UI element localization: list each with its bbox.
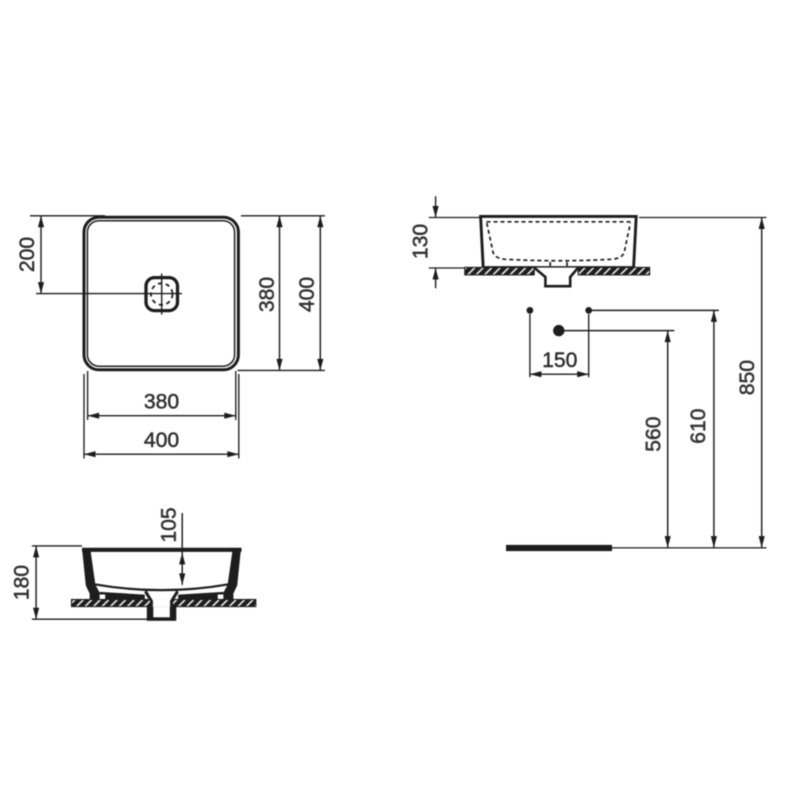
svg-text:380: 380 [256,277,279,312]
svg-text:200: 200 [16,237,39,272]
svg-text:560: 560 [642,417,665,452]
svg-text:610: 610 [687,409,710,444]
svg-text:400: 400 [296,277,319,312]
svg-text:105: 105 [158,507,181,542]
svg-text:850: 850 [736,360,759,395]
svg-text:150: 150 [542,349,577,372]
svg-text:130: 130 [409,224,432,259]
svg-text:180: 180 [11,565,34,600]
svg-text:380: 380 [144,391,179,414]
svg-text:400: 400 [144,429,179,452]
